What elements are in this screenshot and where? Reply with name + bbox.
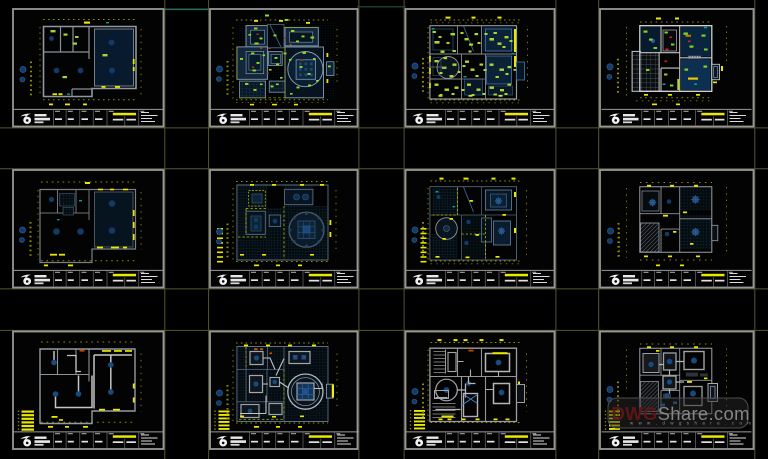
- svg-text:w w w . d w g s h a r e . c o: w w w . d w g s h a r e . c o m: [630, 421, 753, 426]
